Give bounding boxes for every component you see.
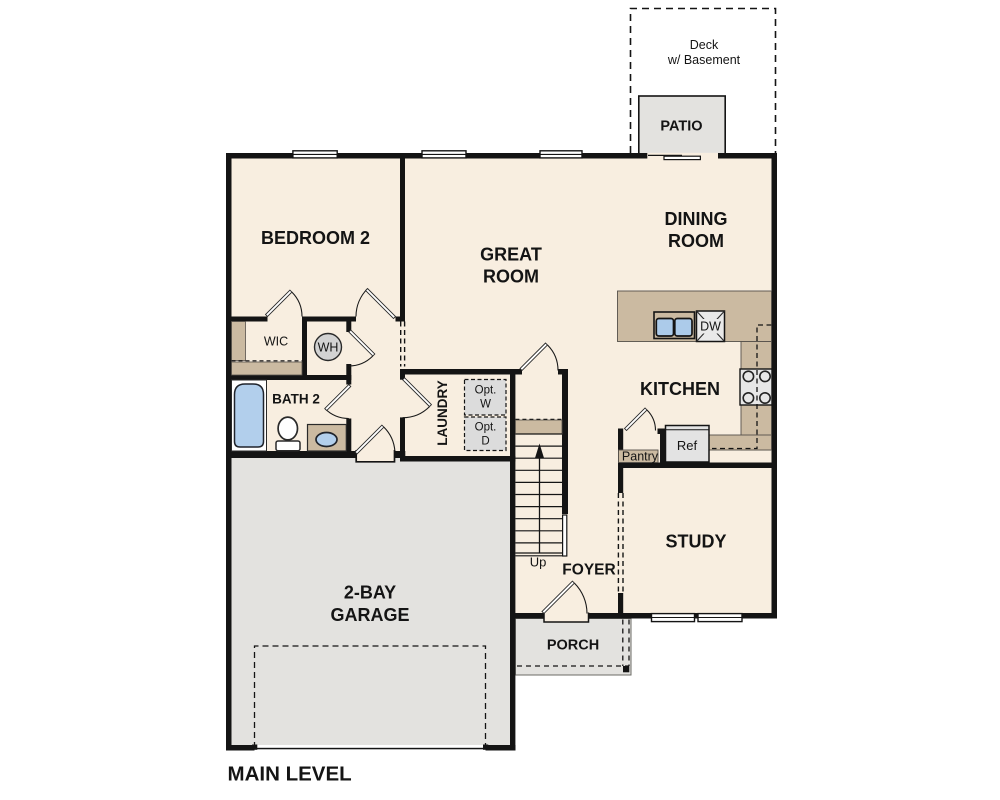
svg-text:KITCHEN: KITCHEN <box>640 379 720 399</box>
svg-text:Up: Up <box>530 555 547 570</box>
svg-text:PATIO: PATIO <box>660 119 702 135</box>
svg-text:Opt.: Opt. <box>475 385 497 397</box>
svg-text:PORCH: PORCH <box>547 638 599 654</box>
svg-text:GREAT: GREAT <box>480 245 542 265</box>
svg-text:LAUNDRY: LAUNDRY <box>435 380 450 446</box>
svg-text:BATH 2: BATH 2 <box>272 392 320 407</box>
svg-text:ROOM: ROOM <box>668 231 724 251</box>
svg-text:Ref: Ref <box>677 438 698 453</box>
svg-text:WIC: WIC <box>264 335 288 349</box>
svg-text:W: W <box>480 399 491 411</box>
svg-text:D: D <box>481 436 489 448</box>
svg-text:w/ Basement: w/ Basement <box>667 53 741 67</box>
svg-text:DINING: DINING <box>665 209 728 229</box>
svg-text:WH: WH <box>318 341 339 355</box>
svg-text:BEDROOM 2: BEDROOM 2 <box>261 228 370 248</box>
svg-text:2-BAY: 2-BAY <box>344 583 396 603</box>
svg-text:Deck: Deck <box>690 38 719 52</box>
svg-text:ROOM: ROOM <box>483 267 539 287</box>
svg-text:FOYER: FOYER <box>562 562 615 579</box>
svg-text:MAIN LEVEL: MAIN LEVEL <box>228 763 352 786</box>
svg-text:DW: DW <box>700 320 721 334</box>
svg-text:GARAGE: GARAGE <box>330 605 409 625</box>
svg-text:Pantry: Pantry <box>622 450 659 464</box>
svg-text:Opt.: Opt. <box>475 422 497 434</box>
svg-text:STUDY: STUDY <box>665 532 726 552</box>
